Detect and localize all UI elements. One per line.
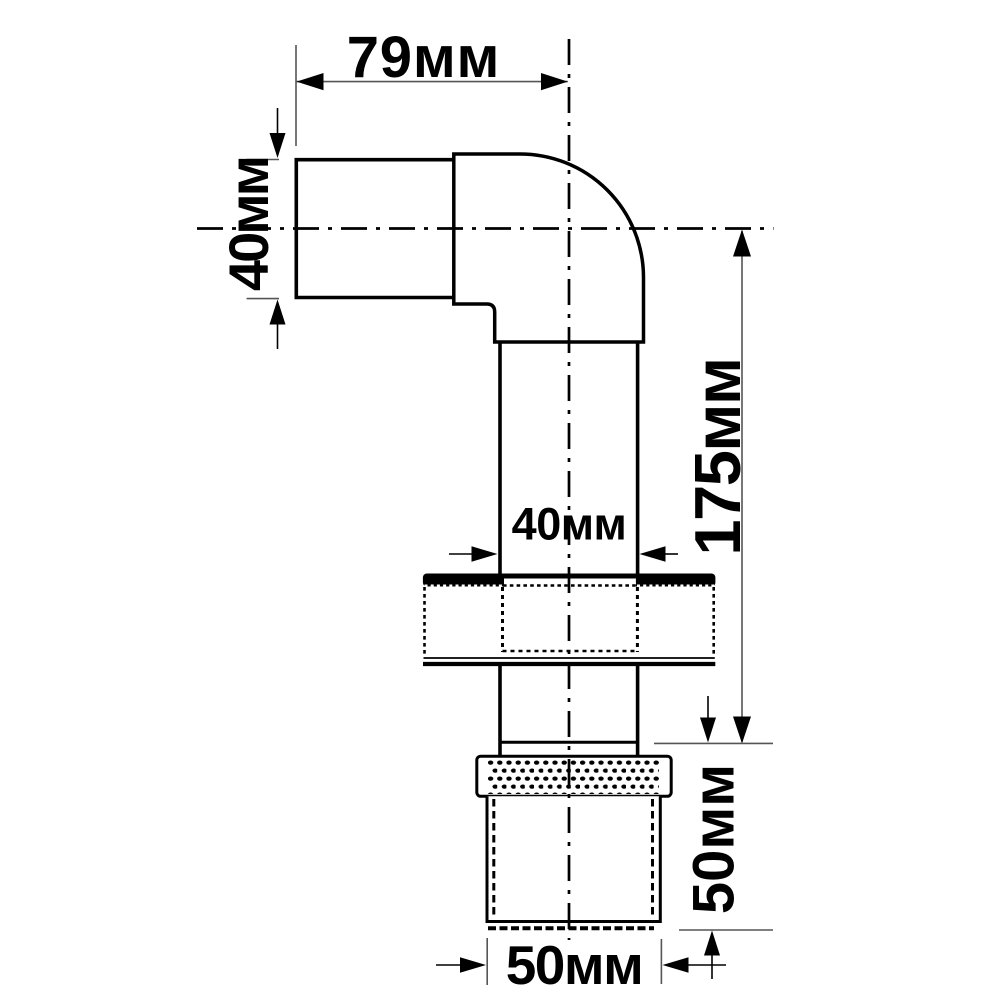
svg-text:50мм: 50мм xyxy=(506,934,643,996)
svg-text:50мм: 50мм xyxy=(682,764,747,914)
svg-text:175мм: 175мм xyxy=(681,358,754,555)
svg-text:40мм: 40мм xyxy=(512,499,627,550)
svg-text:79мм: 79мм xyxy=(347,25,501,90)
svg-text:40мм: 40мм xyxy=(217,158,280,291)
